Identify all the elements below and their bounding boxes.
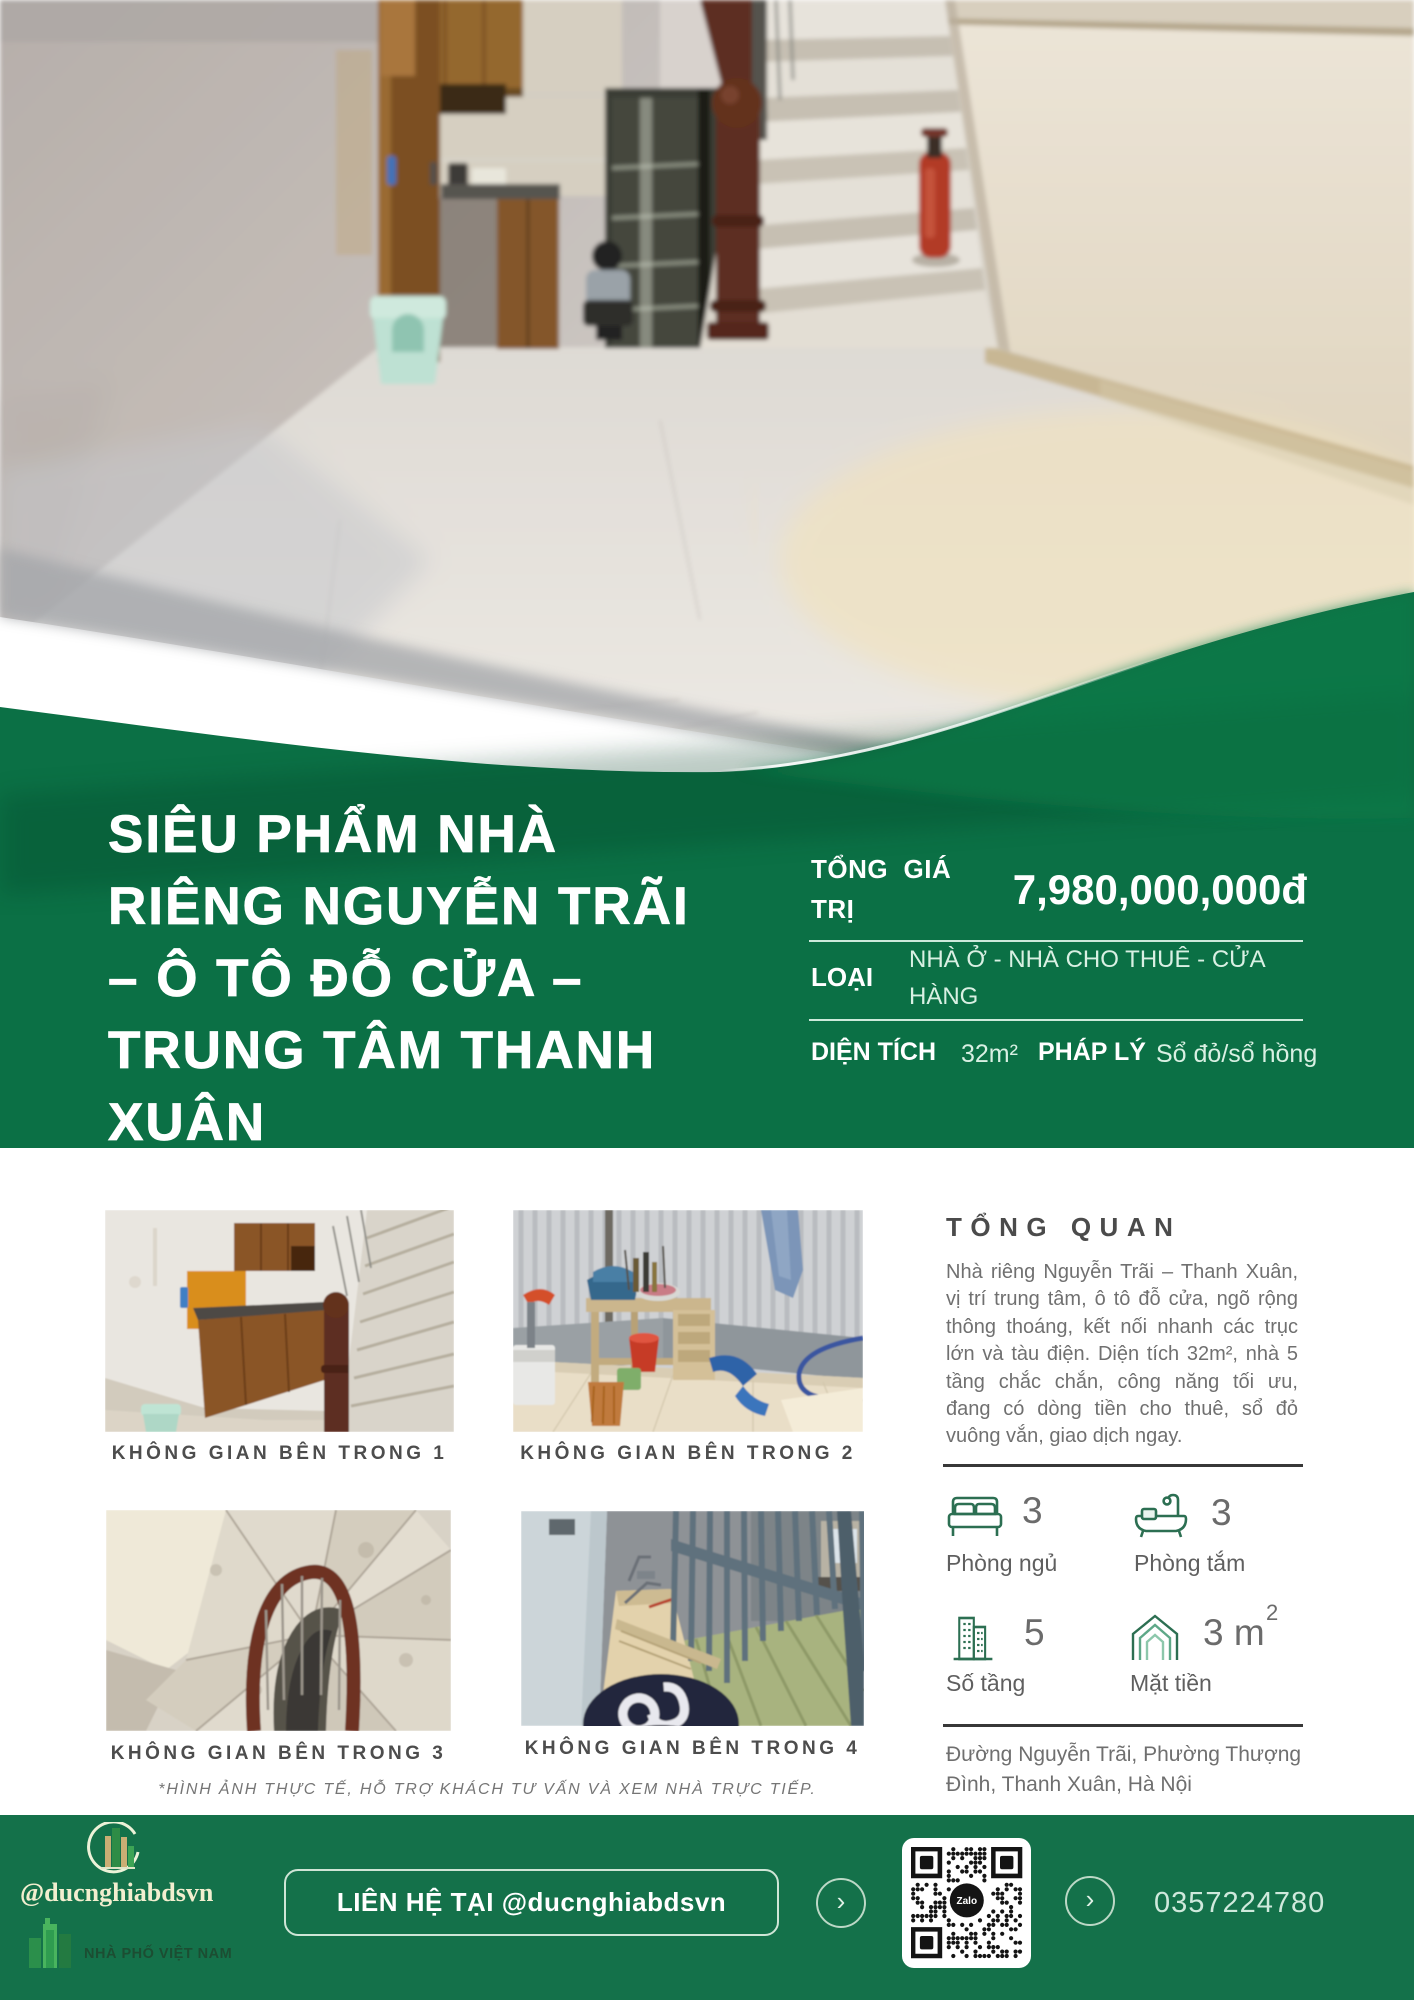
- svg-text:Zalo: Zalo: [957, 1896, 978, 1907]
